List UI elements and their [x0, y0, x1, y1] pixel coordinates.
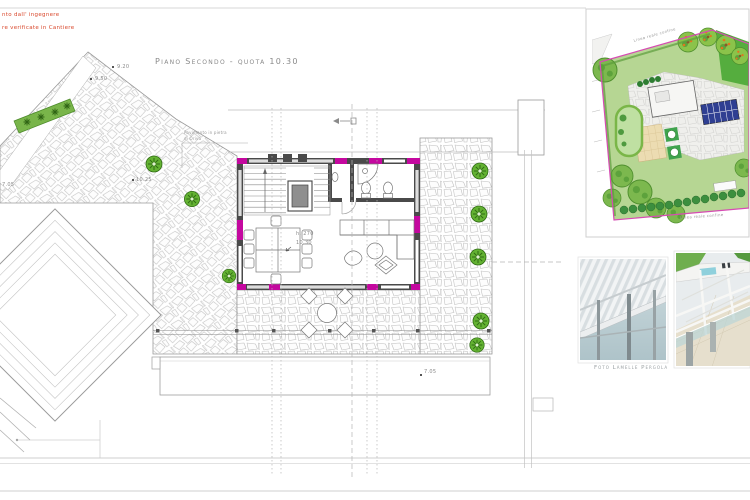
- bidet: [384, 182, 393, 194]
- spot-height-705-roof: 7.05: [424, 369, 436, 375]
- plant-sprig-icon: [38, 114, 45, 121]
- shrub-icon: [470, 338, 484, 352]
- play-area: [616, 106, 642, 156]
- pergola-photo: [578, 257, 668, 363]
- shrub-icon: [146, 156, 162, 172]
- hip-roof: [0, 209, 161, 421]
- lower-roof-band: [152, 357, 490, 395]
- drawing-sheet: nto dall' ingegnere re verificate in Can…: [0, 0, 750, 500]
- shrub-icon: [471, 206, 487, 222]
- plant-sprig-icon: [24, 119, 31, 126]
- shrub-icon: [184, 191, 199, 206]
- right-wall-lines: [525, 150, 554, 468]
- glass-post: [653, 290, 656, 362]
- plant-sprig-icon: [64, 103, 71, 110]
- toilet: [362, 182, 371, 194]
- plant-sprig-icon: [52, 109, 59, 116]
- coffee-table: [367, 243, 383, 259]
- section-marker-icon: [333, 118, 356, 124]
- site-plan: Linea reale confine Linea reale confine: [586, 9, 750, 237]
- spot-height-1025: 10.25: [136, 177, 152, 183]
- upper-column: [518, 100, 544, 155]
- height-note-line2: 10.30: [296, 240, 312, 246]
- floor-plan-drawing: 9.20 9.50 7.05 10.25 7.05 h. 270 10.30 P…: [0, 0, 750, 500]
- outdoor-table: [318, 304, 337, 323]
- tree-icon: [732, 48, 749, 65]
- wall-vents: [268, 154, 307, 162]
- washbasin: [332, 173, 338, 182]
- shrub-icon: [473, 313, 489, 329]
- retaining-walls: [0, 398, 36, 452]
- height-note-line1: h. 270: [296, 231, 314, 237]
- paving-note-line2: di Oriva: [184, 136, 202, 141]
- tree-icon: [611, 165, 633, 187]
- shrub-icon: [472, 163, 488, 179]
- glass-post: [597, 300, 600, 362]
- spot-height-950: 9.50: [95, 76, 107, 82]
- shrub-icon: [222, 269, 236, 283]
- shrub-icon: [470, 249, 486, 265]
- tree-icon: [628, 180, 652, 204]
- render-photo: [674, 251, 750, 368]
- spot-height-705-left: 7.05: [2, 182, 14, 188]
- elevator: [288, 181, 312, 211]
- spot-height-920: 9.20: [117, 64, 129, 70]
- eaves-lines: [228, 110, 545, 152]
- tree-icon: [735, 159, 750, 177]
- paving-note-line1: Pavimento in pietra: [184, 130, 227, 135]
- glass-post: [627, 294, 631, 362]
